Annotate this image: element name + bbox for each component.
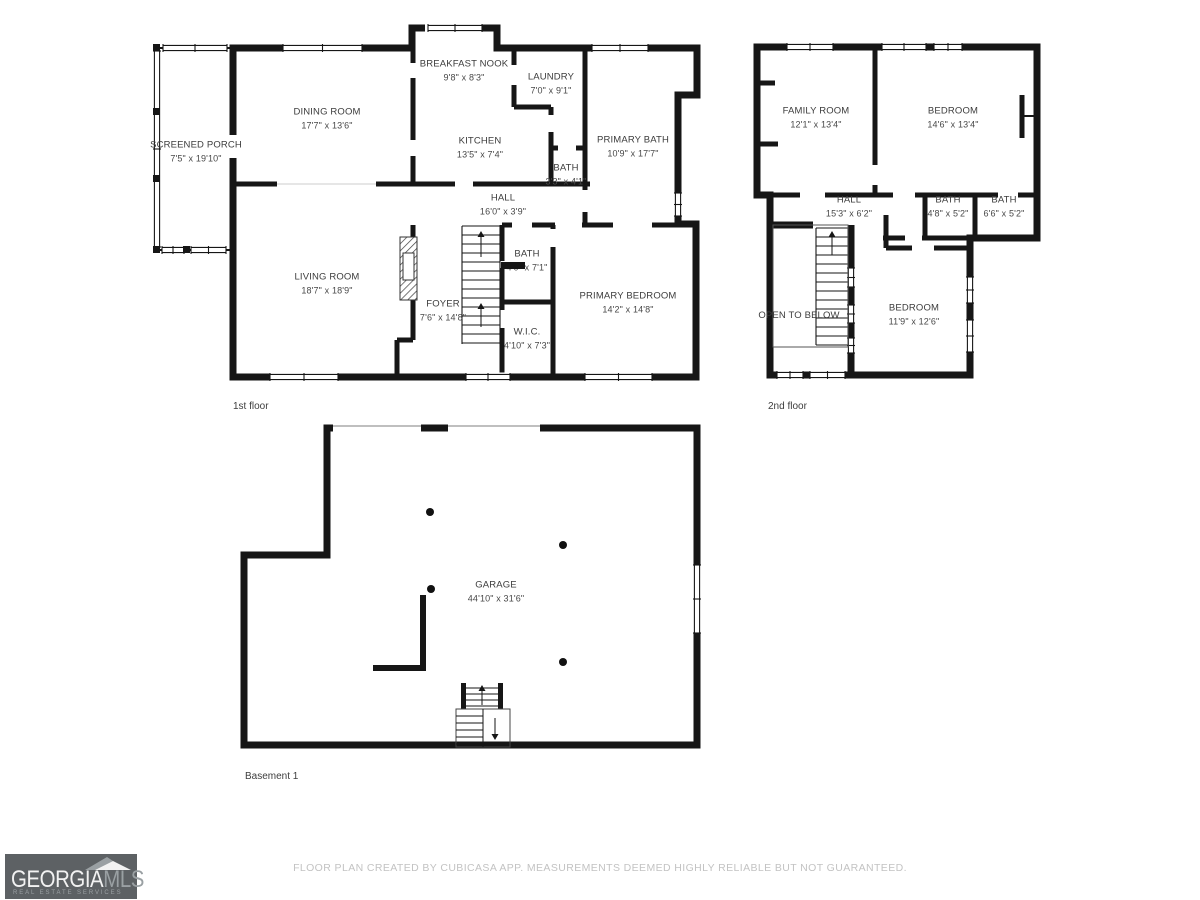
room-name: FOYER [420,298,466,312]
room-label-bath-foyer: BATH 4'0" x 7'1" [507,248,548,275]
room-label-primary-bath: PRIMARY BATH 10'9" x 17'7" [597,134,669,161]
floor-label-second: 2nd floor [768,401,807,412]
room-name: OPEN TO BELOW [758,309,839,323]
floor-label-basement: Basement 1 [245,771,298,782]
room-name: LAUNDRY [528,71,574,85]
room-dims: 18'7" x 18'9" [295,284,360,297]
room-dims: 14'2" x 14'8" [580,303,677,316]
wall-stub-over-bath-dims [501,262,525,269]
room-dims: 7'0" x 9'1" [528,84,574,97]
georgia-mls-logo: GEORGIAMLS REAL ESTATE SERVICES [5,854,137,899]
room-label-family-room: FAMILY ROOM 12'1" x 13'4" [783,105,850,132]
room-dims: 7'6" x 14'8" [420,311,466,324]
disclaimer-text: FLOOR PLAN CREATED BY CUBICASA APP. MEAS… [0,862,1200,874]
room-name: PRIMARY BEDROOM [580,290,677,304]
room-label-kitchen: KITCHEN 13'5" x 7'4" [457,135,503,162]
support-post-icon [426,508,434,516]
room-label-foyer: FOYER 7'6" x 14'8" [420,298,466,325]
room-label-bath-b: BATH 6'6" x 5'2" [984,194,1025,221]
support-post-icon [559,541,567,549]
room-dims: 4'8" x 5'2" [928,207,969,220]
room-name: BEDROOM [927,105,978,119]
room-name: GARAGE [468,579,524,593]
room-label-hall-first: HALL 16'0" x 3'9" [480,192,526,219]
room-label-dining-room: DINING ROOM 17'7" x 13'6" [293,106,360,133]
room-dims: 13'5" x 7'4" [457,148,503,161]
room-name: PRIMARY BATH [597,134,669,148]
windows-and-stairs-decorations [153,24,975,748]
room-label-bath-a: BATH 4'8" x 5'2" [928,194,969,221]
room-dims: 6'6" x 5'2" [984,207,1025,220]
room-dims: 14'6" x 13'4" [927,118,978,131]
room-dims: 10'9" x 17'7" [597,147,669,160]
support-post-icon [559,658,567,666]
room-label-living-room: LIVING ROOM 18'7" x 18'9" [295,271,360,298]
room-name: SCREENED PORCH [150,139,242,153]
room-label-hall-second: HALL 15'3" x 6'2" [826,194,872,221]
room-label-bedroom-lower: BEDROOM 11'9" x 12'6" [889,302,940,329]
room-label-primary-bedroom: PRIMARY BEDROOM 14'2" x 14'8" [580,290,677,317]
room-name: BATH [507,248,548,262]
room-name: FAMILY ROOM [783,105,850,119]
room-name: BEDROOM [889,302,940,316]
fireplace-firebox [403,253,414,280]
room-name: LIVING ROOM [295,271,360,285]
room-dims: 11'9" x 12'6" [889,315,940,328]
room-dims: 9'8" x 8'3" [420,71,509,84]
room-name: DINING ROOM [293,106,360,120]
floor-plan-page: SCREENED PORCH 7'5" x 19'10" DINING ROOM… [0,0,1200,900]
room-dims: 15'3" x 6'2" [826,207,872,220]
room-dims: 17'7" x 13'6" [293,119,360,132]
room-dims: 16'0" x 3'9" [480,205,526,218]
room-name: BATH [928,194,969,208]
first-floor-interior-walls [233,48,678,377]
room-label-breakfast-nook: BREAKFAST NOOK 9'8" x 8'3" [420,58,509,85]
room-name: BREAKFAST NOOK [420,58,509,72]
room-label-screened-porch: SCREENED PORCH 7'5" x 19'10" [150,139,242,166]
room-dims: 44'10" x 31'6" [468,592,524,605]
logo-secondary: MLS [103,866,144,893]
support-post-icon [427,585,435,593]
room-name: W.I.C. [504,326,550,340]
room-label-open-to-below: OPEN TO BELOW [758,309,839,323]
room-name: HALL [480,192,526,206]
room-dims: 12'1" x 13'4" [783,118,850,131]
room-label-bedroom-upper: BEDROOM 14'6" x 13'4" [927,105,978,132]
logo-primary: GEORGIA [11,866,103,893]
room-label-garage: GARAGE 44'10" x 31'6" [468,579,524,606]
room-name: BATH [546,162,587,176]
room-label-wic: W.I.C. 4'10" x 7'3" [504,326,550,353]
room-dims: 3'3" x 4'1" [546,175,587,188]
basement-interior-walls [373,595,423,668]
room-name: BATH [984,194,1025,208]
room-name: HALL [826,194,872,208]
room-label-bath-small: BATH 3'3" x 4'1" [546,162,587,189]
logo-tagline: REAL ESTATE SERVICES [13,890,122,896]
room-dims: 4'10" x 7'3" [504,339,550,352]
room-label-laundry: LAUNDRY 7'0" x 9'1" [528,71,574,98]
room-dims: 7'5" x 19'10" [150,152,242,165]
room-name: KITCHEN [457,135,503,149]
floor-label-first: 1st floor [233,401,269,412]
